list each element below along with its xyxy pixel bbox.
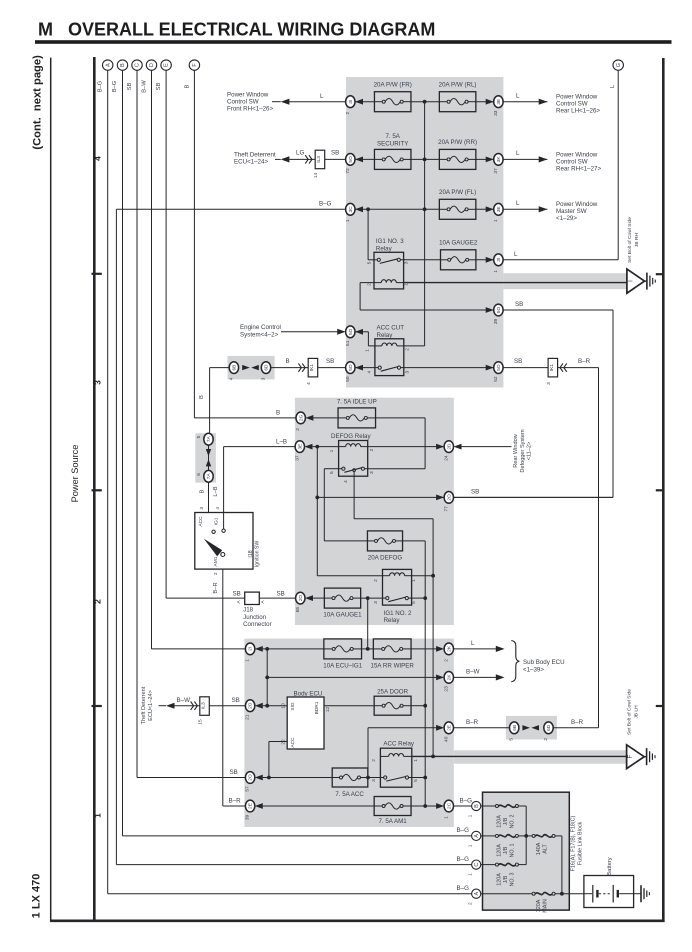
- svg-text:B–W: B–W: [177, 697, 191, 704]
- svg-text:I18: I18: [248, 550, 254, 557]
- svg-text:2E: 2E: [446, 725, 452, 731]
- svg-text:D: D: [149, 63, 155, 67]
- svg-text:25A DOOR: 25A DOOR: [377, 688, 408, 695]
- svg-text:ACC Relay: ACC Relay: [383, 741, 415, 748]
- svg-text:4: 4: [306, 382, 312, 385]
- svg-text:ECU<1–24>: ECU<1–24>: [148, 690, 154, 721]
- svg-text:BDR1: BDR1: [314, 701, 320, 714]
- svg-text:Engine Control: Engine Control: [240, 324, 281, 331]
- svg-text:G: G: [616, 63, 622, 67]
- svg-text:1 LX 470: 1 LX 470: [31, 874, 43, 919]
- svg-text:B–G: B–G: [457, 856, 470, 863]
- svg-text:M OVERALL ELECTRICAL WIRING: M OVERALL ELECTRICAL WIRING DIAGRAM: [38, 20, 435, 40]
- svg-text:SB: SB: [156, 83, 162, 91]
- svg-text:LG: LG: [296, 150, 304, 157]
- svg-text:B–G: B–G: [112, 80, 118, 92]
- svg-text:3E: 3E: [297, 444, 303, 450]
- svg-text:Power Source: Power Source: [70, 445, 80, 503]
- svg-text:E: E: [164, 63, 170, 67]
- svg-text:Theft Deterrent: Theft Deterrent: [234, 152, 276, 159]
- svg-text:15A RR WIPER: 15A RR WIPER: [371, 662, 415, 669]
- svg-text:Junction: Junction: [243, 614, 267, 621]
- svg-text:2: 2: [213, 572, 219, 575]
- svg-text:SB: SB: [127, 83, 133, 91]
- svg-text:2O: 2O: [248, 702, 254, 709]
- svg-text:B–G: B–G: [457, 827, 470, 834]
- svg-text:<11–2>: <11–2>: [527, 442, 533, 461]
- svg-text:2O: 2O: [248, 774, 254, 781]
- svg-text:F: F: [192, 63, 198, 67]
- svg-text:10A ECU–IG1: 10A ECU–IG1: [323, 662, 362, 669]
- svg-text:C: C: [474, 863, 480, 867]
- svg-text:SECURITY: SECURITY: [377, 140, 408, 147]
- svg-text:5: 5: [329, 471, 335, 474]
- svg-text:7. 5A ACC: 7. 5A ACC: [335, 791, 364, 798]
- svg-text:IG1: IG1: [214, 517, 220, 525]
- svg-text:2E: 2E: [248, 803, 254, 809]
- svg-text:7A: 7A: [206, 435, 212, 442]
- svg-text:5: 5: [196, 435, 202, 438]
- svg-text:1: 1: [493, 219, 499, 222]
- svg-text:5O: 5O: [348, 156, 354, 163]
- svg-text:IG1 NO. 3: IG1 NO. 3: [376, 238, 404, 245]
- svg-text:Power Window: Power Window: [556, 151, 598, 158]
- svg-text:A: A: [105, 63, 111, 67]
- svg-text:J18: J18: [243, 607, 254, 614]
- svg-text:AM1: AM1: [213, 556, 219, 566]
- svg-text:14: 14: [313, 173, 319, 179]
- svg-text:5O: 5O: [348, 364, 354, 371]
- svg-text:1: 1: [364, 349, 370, 352]
- svg-text:2: 2: [366, 283, 372, 286]
- svg-text:2: 2: [543, 738, 549, 741]
- svg-text:3: 3: [371, 779, 377, 782]
- svg-text:A: A: [474, 834, 480, 838]
- svg-text:2I: 2I: [248, 647, 254, 651]
- svg-text:B–R: B–R: [466, 719, 479, 726]
- svg-text:33: 33: [493, 110, 499, 116]
- svg-text:B–R: B–R: [578, 358, 591, 365]
- svg-text:J/B: J/B: [503, 846, 509, 854]
- svg-text:20A P/W (FR): 20A P/W (FR): [374, 82, 412, 89]
- svg-text:Power Window: Power Window: [227, 91, 269, 98]
- svg-text:2K: 2K: [446, 674, 452, 681]
- svg-text:SB: SB: [233, 591, 241, 598]
- svg-text:IL3: IL3: [316, 156, 322, 163]
- svg-text:B: B: [200, 489, 206, 493]
- svg-text:4: 4: [215, 507, 221, 510]
- svg-text:1: 1: [443, 816, 449, 819]
- svg-text:ACC: ACC: [198, 516, 204, 527]
- svg-text:2: 2: [371, 759, 377, 762]
- svg-text:B: B: [184, 84, 190, 88]
- svg-text:10: 10: [280, 703, 286, 709]
- svg-text:51: 51: [345, 340, 351, 346]
- svg-text:SB: SB: [326, 358, 334, 365]
- svg-text:B–R: B–R: [229, 798, 242, 805]
- svg-text:1: 1: [468, 873, 474, 876]
- svg-text:15: 15: [198, 719, 204, 725]
- svg-text:4: 4: [228, 377, 234, 380]
- svg-text:JB LH: JB LH: [634, 705, 640, 719]
- svg-text:1: 1: [92, 813, 102, 818]
- svg-text:B–R: B–R: [571, 719, 584, 726]
- svg-text:IK1: IK1: [309, 364, 315, 372]
- svg-text:120A: 120A: [536, 899, 542, 912]
- svg-text:4: 4: [367, 371, 373, 374]
- svg-text:6: 6: [196, 473, 202, 476]
- svg-text:20A P/W (FL): 20A P/W (FL): [439, 189, 476, 196]
- svg-text:3I: 3I: [496, 258, 502, 262]
- svg-text:3E: 3E: [496, 99, 502, 105]
- svg-text:2K: 2K: [446, 645, 452, 652]
- svg-text:3: 3: [92, 380, 102, 385]
- svg-text:System<4–2>: System<4–2>: [240, 331, 279, 338]
- svg-text:20A P/W (RR): 20A P/W (RR): [438, 139, 477, 146]
- svg-text:B: B: [276, 409, 280, 416]
- svg-text:7A: 7A: [206, 473, 212, 480]
- svg-text:Control SW: Control SW: [556, 100, 588, 107]
- svg-text:F: F: [628, 755, 634, 759]
- svg-text:23: 23: [443, 686, 449, 692]
- svg-text:6D: 6D: [546, 724, 552, 731]
- svg-text:SB: SB: [331, 150, 339, 157]
- svg-text:3I: 3I: [348, 100, 354, 104]
- svg-text:IK1: IK1: [549, 364, 555, 372]
- svg-text:5O: 5O: [496, 307, 502, 314]
- svg-text:1: 1: [329, 449, 335, 452]
- svg-text:<1–29>: <1–29>: [556, 215, 577, 222]
- svg-text:39: 39: [493, 319, 499, 325]
- svg-text:50: 50: [345, 376, 351, 382]
- svg-text:NO. 2: NO. 2: [510, 814, 516, 828]
- svg-text:2: 2: [92, 599, 102, 604]
- svg-text:72: 72: [345, 168, 351, 174]
- svg-text:2: 2: [369, 448, 375, 451]
- svg-text:6B: 6B: [232, 365, 238, 371]
- svg-text:J/B: J/B: [503, 875, 509, 883]
- svg-text:L–B: L–B: [213, 486, 219, 496]
- svg-text:JB RH: JB RH: [634, 232, 640, 247]
- svg-text:7. 5A IDLE UP: 7. 5A IDLE UP: [337, 398, 377, 405]
- svg-text:L: L: [516, 200, 520, 207]
- svg-text:5: 5: [411, 601, 417, 604]
- svg-text:B: B: [286, 358, 290, 365]
- svg-text:5O: 5O: [496, 364, 502, 371]
- svg-text:2O: 2O: [446, 494, 452, 501]
- svg-text:20A P/W (RL): 20A P/W (RL): [439, 82, 477, 89]
- svg-text:3C: 3C: [348, 206, 354, 213]
- svg-text:10A GAUGE1: 10A GAUGE1: [323, 611, 362, 618]
- svg-text:ECU<1–24>: ECU<1–24>: [234, 159, 268, 166]
- svg-text:B: B: [120, 63, 126, 67]
- svg-text:2: 2: [405, 348, 411, 351]
- svg-text:B: B: [199, 395, 205, 399]
- svg-text:Theft Deterrent: Theft Deterrent: [141, 686, 147, 724]
- svg-text:ALT: ALT: [542, 844, 548, 854]
- svg-text:SB: SB: [277, 591, 285, 598]
- svg-text:Body ECU: Body ECU: [294, 690, 323, 697]
- svg-text:Master SW: Master SW: [556, 208, 587, 215]
- svg-text:1: 1: [245, 659, 251, 662]
- svg-text:Rear Window: Rear Window: [513, 433, 519, 468]
- svg-text:2C: 2C: [446, 802, 452, 809]
- svg-text:24: 24: [443, 455, 449, 461]
- svg-text:40: 40: [443, 736, 449, 742]
- svg-text:3: 3: [373, 601, 379, 604]
- svg-text:B–G: B–G: [457, 885, 470, 892]
- svg-text:10A GAUGE2: 10A GAUGE2: [439, 239, 478, 246]
- svg-text:52: 52: [493, 376, 499, 382]
- svg-text:SB: SB: [514, 358, 522, 365]
- svg-text:B–G: B–G: [460, 797, 473, 804]
- svg-text:L: L: [516, 150, 520, 157]
- svg-text:12: 12: [325, 707, 331, 713]
- svg-text:2O: 2O: [298, 595, 304, 602]
- svg-text:2D: 2D: [446, 443, 452, 450]
- svg-text:B–W: B–W: [466, 669, 480, 676]
- svg-text:140A: 140A: [536, 842, 542, 855]
- svg-text:2G: 2G: [298, 414, 304, 421]
- svg-text:SIG: SIG: [290, 702, 296, 711]
- svg-text:4: 4: [92, 156, 102, 161]
- svg-text:Battery: Battery: [607, 857, 613, 875]
- svg-text:<1–39>: <1–39>: [523, 667, 544, 674]
- svg-text:3: 3: [369, 471, 375, 474]
- svg-text:1: 1: [493, 270, 499, 273]
- svg-text:Ignition SW: Ignition SW: [254, 541, 260, 568]
- svg-text:4: 4: [343, 480, 349, 483]
- svg-text:2: 2: [345, 112, 351, 115]
- svg-text:2: 2: [468, 902, 474, 905]
- svg-text:65: 65: [295, 607, 301, 613]
- svg-text:NO. 3: NO. 3: [510, 872, 516, 886]
- svg-text:Set Bolt of Cowl Side: Set Bolt of Cowl Side: [627, 689, 633, 735]
- svg-text:2: 2: [373, 579, 379, 582]
- svg-text:B–G: B–G: [319, 200, 332, 207]
- svg-text:SB: SB: [515, 301, 523, 308]
- svg-text:120A: 120A: [497, 844, 503, 857]
- svg-text:37: 37: [294, 455, 300, 461]
- svg-text:Power Window: Power Window: [556, 93, 598, 100]
- svg-text:1: 1: [468, 844, 474, 847]
- svg-text:B–W: B–W: [142, 80, 148, 93]
- svg-text:Fusible Link Block: Fusible Link Block: [577, 821, 583, 865]
- svg-text:Set Bolt of Cowl Side: Set Bolt of Cowl Side: [627, 217, 633, 263]
- svg-text:57: 57: [245, 786, 251, 792]
- svg-text:SB: SB: [230, 769, 238, 776]
- svg-text:120A: 120A: [497, 815, 503, 828]
- svg-text:2: 2: [295, 428, 301, 431]
- svg-text:Control SW: Control SW: [227, 98, 259, 105]
- svg-text:6D: 6D: [264, 364, 270, 371]
- svg-text:J/B: J/B: [503, 817, 509, 825]
- svg-text:L: L: [320, 93, 324, 100]
- svg-text:1: 1: [468, 814, 474, 817]
- svg-text:1: 1: [345, 219, 351, 222]
- svg-text:120A: 120A: [497, 873, 503, 886]
- svg-text:F16(A), F17(B), F18(C): F16(A), F17(B), F18(C): [570, 815, 576, 871]
- svg-text:DEFOG Relay: DEFOG Relay: [331, 433, 371, 440]
- svg-text:1: 1: [411, 579, 417, 582]
- svg-text:2: 2: [443, 659, 449, 662]
- svg-text:B–R: B–R: [213, 582, 219, 593]
- svg-text:Relay: Relay: [377, 332, 394, 339]
- svg-text:7. 5A AM1: 7. 5A AM1: [378, 818, 407, 825]
- svg-text:3: 3: [546, 382, 552, 385]
- svg-text:Rear LH<1–26>: Rear LH<1–26>: [556, 107, 600, 114]
- svg-text:Control SW: Control SW: [556, 158, 588, 165]
- svg-text:(Cont. next page): (Cont. next page): [32, 55, 44, 150]
- svg-text:IL3: IL3: [201, 702, 207, 709]
- svg-text:B: B: [474, 804, 480, 808]
- svg-text:L: L: [471, 640, 475, 647]
- svg-text:21: 21: [245, 714, 251, 720]
- svg-text:3: 3: [403, 261, 409, 264]
- svg-text:IG1 NO. 2: IG1 NO. 2: [384, 610, 412, 617]
- svg-text:Relay: Relay: [376, 245, 393, 252]
- svg-text:L–B: L–B: [276, 439, 287, 446]
- svg-text:SB: SB: [471, 489, 479, 496]
- svg-text:A: A: [474, 892, 480, 896]
- svg-text:5O: 5O: [348, 328, 354, 335]
- svg-text:Relay: Relay: [384, 617, 401, 624]
- svg-text:Front RH<1–26>: Front RH<1–26>: [227, 105, 273, 112]
- svg-text:NO. 1: NO. 1: [510, 843, 516, 857]
- svg-text:C: C: [135, 63, 141, 67]
- svg-text:20A DEFOG: 20A DEFOG: [368, 554, 403, 561]
- svg-text:39: 39: [245, 815, 251, 821]
- svg-text:Rear RH<1–27>: Rear RH<1–27>: [556, 165, 601, 172]
- svg-text:5: 5: [413, 779, 419, 782]
- svg-text:37: 37: [493, 168, 499, 174]
- svg-text:Power Window: Power Window: [556, 201, 598, 208]
- svg-text:3: 3: [199, 507, 205, 510]
- svg-text:Connector: Connector: [243, 621, 272, 628]
- svg-text:ACC CUT: ACC CUT: [377, 325, 405, 332]
- svg-text:Defogger System: Defogger System: [520, 429, 526, 473]
- svg-text:ACC: ACC: [290, 737, 296, 748]
- svg-text:MAIN: MAIN: [542, 899, 548, 913]
- svg-text:6B: 6B: [512, 725, 518, 731]
- svg-text:3E: 3E: [496, 206, 502, 212]
- svg-text:L: L: [516, 93, 520, 100]
- svg-text:3K: 3K: [496, 156, 502, 163]
- svg-text:SB: SB: [232, 697, 240, 704]
- svg-text:7. 5A: 7. 5A: [385, 133, 400, 140]
- svg-text:5: 5: [366, 261, 372, 264]
- svg-text:Sub Body ECU: Sub Body ECU: [523, 659, 565, 666]
- svg-text:3: 3: [261, 377, 267, 380]
- svg-text:77: 77: [443, 506, 449, 512]
- svg-text:B–G: B–G: [97, 80, 103, 92]
- svg-text:L: L: [514, 251, 518, 258]
- svg-text:1: 1: [413, 759, 419, 762]
- svg-text:5: 5: [509, 738, 515, 741]
- svg-text:3: 3: [405, 371, 411, 374]
